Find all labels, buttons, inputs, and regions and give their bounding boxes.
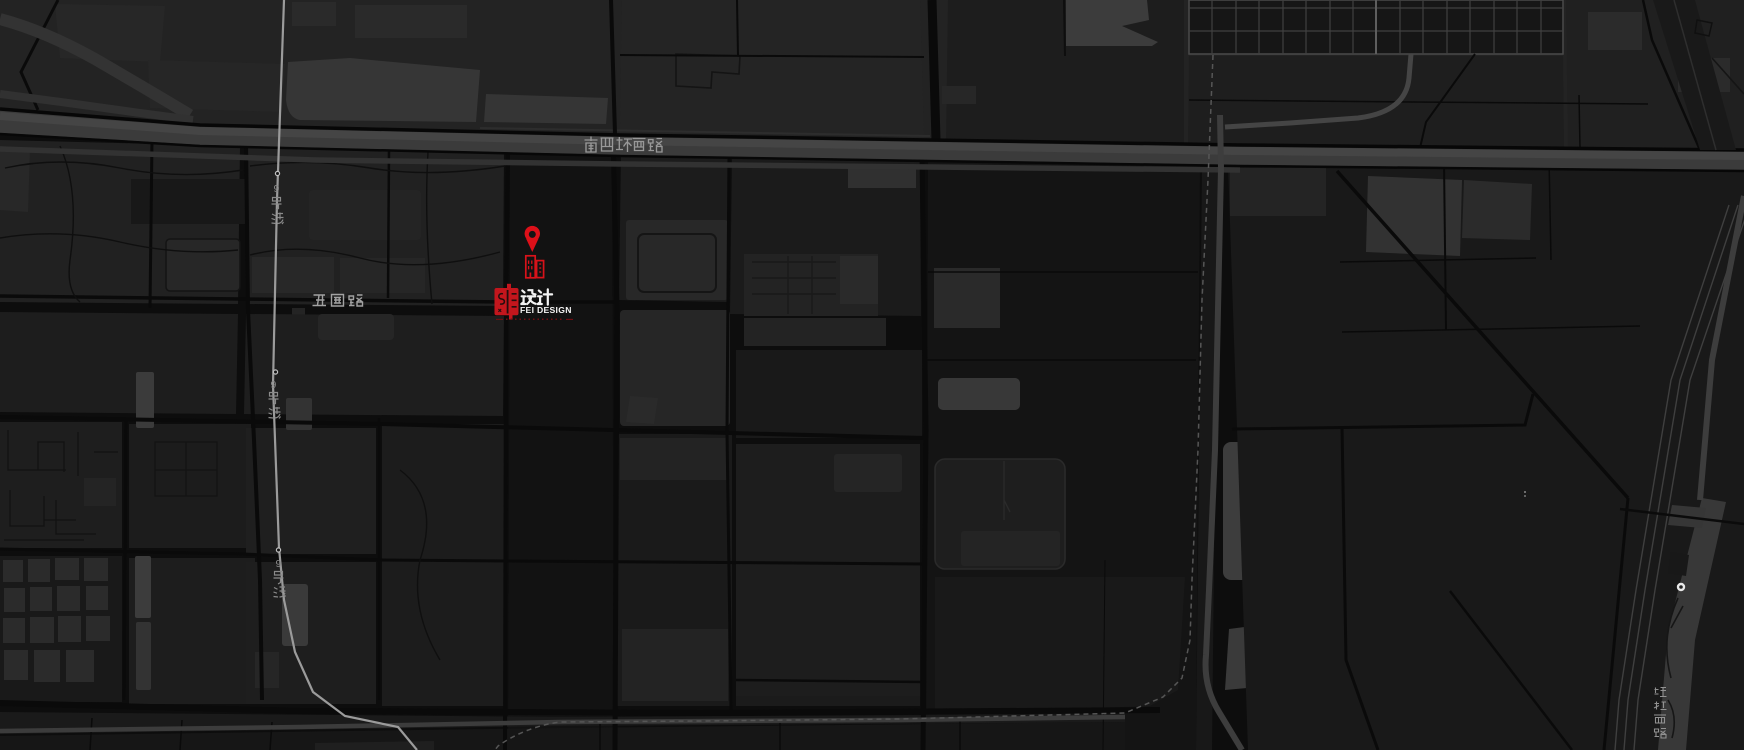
svg-text:9: 9 — [271, 379, 277, 391]
svg-text:9: 9 — [276, 558, 282, 570]
svg-text:9: 9 — [274, 183, 280, 195]
svg-text:FEI DESIGN: FEI DESIGN — [520, 305, 572, 315]
